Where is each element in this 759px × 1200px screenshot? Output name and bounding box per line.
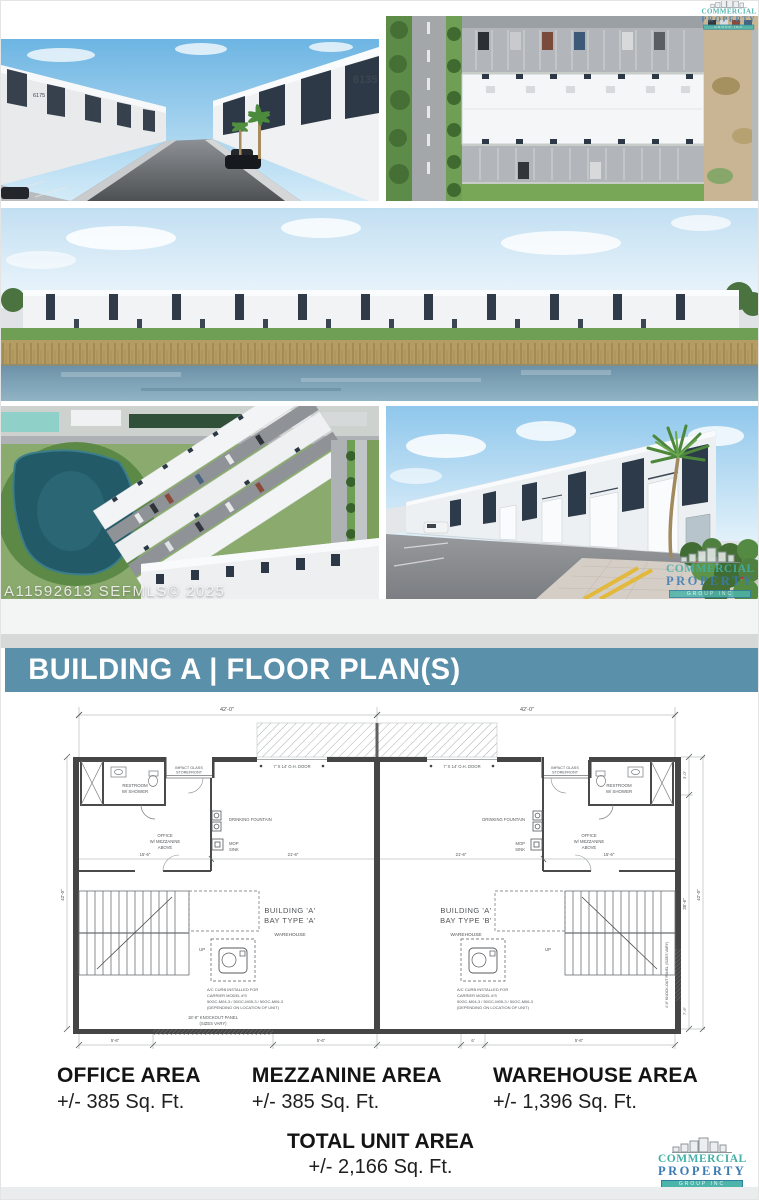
warehouse-band (23, 290, 739, 330)
svg-text:ABOVE: ABOVE (158, 845, 173, 850)
door-swing (575, 855, 591, 871)
knockout-panel-bottom (153, 1029, 273, 1035)
svg-text:50GC-M04-3 / 50GC-M05-3 / 50GC: 50GC-M04-3 / 50GC-M05-3 / 50GC-M06-3 (457, 999, 534, 1004)
commercial-property-logo: COMMERCIAL PROPERTY GROUP INC (658, 1137, 746, 1188)
divider-strip (1, 599, 759, 634)
vertical-road (412, 16, 462, 201)
up-label: UP (545, 947, 551, 952)
total-area-label: TOTAL UNIT AREA (1, 1130, 759, 1154)
svg-text:BAY TYPE 'B': BAY TYPE 'B' (440, 916, 492, 925)
mezzanine-area: MEZZANINE AREA +/- 385 Sq. Ft. (252, 1064, 442, 1114)
ac-unit-left (211, 939, 255, 981)
svg-text:A/C CURB INSTALLED FOR: A/C CURB INSTALLED FOR (207, 987, 258, 992)
dim-right-top: 3'-0" (682, 770, 687, 779)
office-area-label: OFFICE AREA (57, 1064, 201, 1088)
dim-bottom: 5'-6" (317, 1038, 326, 1043)
logo-text-property: PROPERTY (666, 575, 754, 588)
lower-parking (462, 146, 704, 201)
door-swing (188, 778, 203, 793)
logo-text-group: GROUP INC (669, 590, 751, 598)
bay-b-title: BUILDING 'A' BAY TYPE 'B' WAREHOUSE (440, 906, 492, 938)
mop-sink-label: MOP (229, 841, 239, 846)
mop-sink-label: MOP (515, 841, 525, 846)
dim-bottom: 6' (471, 1038, 474, 1043)
building-number-right: 6135 (353, 74, 377, 86)
skyline-icon (680, 547, 740, 563)
svg-text:ABOVE: ABOVE (582, 845, 597, 850)
bay-a-title: BUILDING 'A' BAY TYPE 'A' WAREHOUSE (264, 906, 316, 938)
commercial-property-logo: COMMERCIAL PROPERTY GROUP INC (701, 0, 756, 29)
logo-text-group: GROUP INC (703, 24, 754, 29)
mezzanine-area-label: MEZZANINE AREA (252, 1064, 442, 1088)
total-unit-area: TOTAL UNIT AREA +/- 2,166 Sq. Ft. (1, 1130, 759, 1179)
restroom-label: W/ SHOWER (606, 789, 632, 794)
impact-glass-label: IMPACT GLASS (551, 766, 579, 770)
knockout-right-label: 4'-6" KNOCK-OUT PANEL (SIZES VARY) (665, 942, 669, 1008)
listing-flyer-page: 6175 6135 (0, 0, 759, 1200)
white-building (462, 74, 704, 144)
top-parking (462, 28, 704, 72)
top-road (462, 16, 704, 28)
mezzanine-area-value: +/- 385 Sq. Ft. (252, 1091, 442, 1114)
van (424, 522, 448, 533)
knockout-label: 18'-8" KNOCKOUT PANEL (188, 1015, 239, 1020)
right-dirt-lot (704, 16, 759, 201)
knockout-label: (SIZES VARY) (199, 1021, 227, 1026)
office-label-right: OFFICE W/ MEZZANINE ABOVE (574, 833, 605, 850)
svg-text:OFFICE: OFFICE (157, 833, 173, 838)
water (1, 364, 759, 401)
svg-text:WAREHOUSE: WAREHOUSE (450, 932, 481, 938)
floorplan-header-band: BUILDING A | FLOOR PLAN(S) (5, 648, 758, 692)
door-swing (163, 855, 179, 871)
bottom-dimension (76, 1034, 678, 1049)
dim-warehouse: 21'-6" (456, 852, 467, 857)
dim-right-inner: 35'-6" (682, 898, 687, 910)
svg-text:OFFICE: OFFICE (581, 833, 597, 838)
floor-plan: 42'-0" 42'-0" (57, 699, 705, 1063)
svg-text:50GC-M04-3 / 50GC-M05-3 / 50GC: 50GC-M04-3 / 50GC-M05-3 / 50GC-M06-3 (207, 999, 284, 1004)
skyline-icon (710, 0, 747, 8)
svg-text:CARRIER MODEL #'S: CARRIER MODEL #'S (457, 993, 497, 998)
office-label-left: OFFICE W/ MEZZANINE ABOVE (150, 833, 181, 850)
warehouse-area-value: +/- 1,396 Sq. Ft. (493, 1091, 698, 1114)
impact-glass-label: STOREFRONT (552, 771, 579, 775)
drinking-fountain-label: DRINKING FOUNTAIN (229, 817, 272, 822)
oh-door-label: 7' X 14' O.H. DOOR (273, 764, 310, 769)
photo-panorama-lake (1, 208, 759, 401)
ac-note-left: A/C CURB INSTALLED FOR CARRIER MODEL #'S… (207, 987, 284, 1010)
right-dimensions (681, 754, 705, 1032)
svg-text:BAY TYPE 'A': BAY TYPE 'A' (264, 916, 316, 925)
dim-right-bottom: 7'-6" (682, 1006, 687, 1015)
total-area-value: +/- 2,166 Sq. Ft. (1, 1156, 759, 1179)
dim-bottom: 5'-6" (575, 1038, 584, 1043)
warehouse-area: WAREHOUSE AREA +/- 1,396 Sq. Ft. (493, 1064, 698, 1114)
svg-text:W/ MEZZANINE: W/ MEZZANINE (150, 839, 181, 844)
stairs-right (495, 891, 675, 975)
photo-aerial-topdown (386, 16, 759, 201)
stairs-left (79, 891, 259, 975)
divider-strip-dark (1, 634, 759, 648)
svg-text:BUILDING 'A': BUILDING 'A' (264, 906, 315, 915)
fixtures-left (212, 811, 223, 850)
dim-right-outer: 42'-0" (696, 889, 701, 901)
logo-text-property: PROPERTY (658, 1165, 746, 1178)
svg-text:BUILDING 'A': BUILDING 'A' (440, 906, 491, 915)
oh-door-label: 7' X 14' O.H. DOOR (443, 764, 480, 769)
ac-note-right: A/C CURB INSTALLED FOR CARRIER MODEL #'S… (457, 987, 534, 1010)
svg-text:WAREHOUSE: WAREHOUSE (274, 932, 305, 938)
svg-text:CARRIER MODEL #'S: CARRIER MODEL #'S (207, 993, 247, 998)
left-greenery (386, 16, 412, 201)
mls-watermark: A11592613 SEFMLS© 2025 (4, 583, 225, 600)
door-swing (551, 778, 566, 793)
impact-glass-label: STOREFRONT (176, 771, 203, 775)
restroom-label: RESTROOM (122, 783, 148, 788)
logo-text-property: PROPERTY (701, 16, 756, 24)
mop-sink-label: SINK (229, 847, 239, 852)
up-label: UP (199, 947, 205, 952)
reeds (1, 340, 759, 366)
dim-top-left: 42'-0" (220, 707, 234, 713)
impact-glass-label: IMPACT GLASS (175, 766, 203, 770)
photo-warehouse-street-perspective: 6175 6135 (1, 39, 379, 201)
office-area-value: +/- 385 Sq. Ft. (57, 1091, 201, 1114)
dim-office: 15'-6" (140, 852, 151, 857)
knockout-panel-right (675, 949, 681, 1001)
warehouse-area-label: WAREHOUSE AREA (493, 1064, 698, 1088)
dim-top-right: 42'-0" (520, 707, 534, 713)
area-summary: OFFICE AREA +/- 385 Sq. Ft. MEZZANINE AR… (1, 1064, 759, 1114)
demising-wall-stub (376, 723, 379, 757)
photo-aerial-pond (1, 406, 379, 599)
skyline-icon (672, 1137, 732, 1153)
dim-office: 15'-6" (604, 852, 615, 857)
svg-text:W/ MEZZANINE: W/ MEZZANINE (574, 839, 605, 844)
dim-bottom: 5'-6" (111, 1038, 120, 1043)
commercial-property-logo: COMMERCIAL PROPERTY GROUP INC (666, 547, 754, 598)
office-area: OFFICE AREA +/- 385 Sq. Ft. (57, 1064, 201, 1114)
page-title: BUILDING A | FLOOR PLAN(S) (5, 653, 461, 687)
building-number-left: 6175 (33, 93, 45, 99)
dim-left: 42'-0" (60, 889, 65, 901)
restroom-label: W/ SHOWER (122, 789, 148, 794)
svg-text:(DEPENDING ON LOCATION OF UNIT: (DEPENDING ON LOCATION OF UNIT) (457, 1005, 530, 1010)
svg-text:(DEPENDING ON LOCATION OF UNIT: (DEPENDING ON LOCATION OF UNIT) (207, 1005, 280, 1010)
floor-plan-drawing: 42'-0" 42'-0" (57, 699, 705, 1063)
fixtures-right (531, 811, 542, 850)
svg-text:A/C CURB INSTALLED FOR: A/C CURB INSTALLED FOR (457, 987, 508, 992)
dim-warehouse: 21'-6" (288, 852, 299, 857)
bottom-margin-strip (1, 1187, 759, 1200)
ac-unit-right (461, 939, 505, 981)
mop-sink-label: SINK (515, 847, 525, 852)
drinking-fountain-label: DRINKING FOUNTAIN (482, 817, 525, 822)
restroom-label: RESTROOM (606, 783, 632, 788)
